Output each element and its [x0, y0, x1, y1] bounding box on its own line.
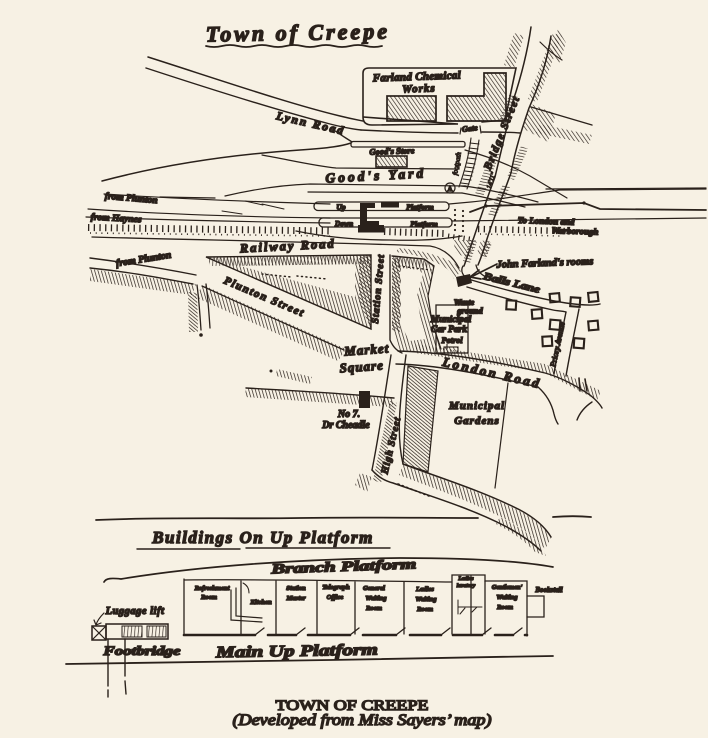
- svg-text:General: General: [363, 585, 385, 592]
- svg-text:Platform: Platform: [406, 203, 434, 212]
- svg-text:Gardens: Gardens: [454, 415, 500, 427]
- svg-text:Down: Down: [334, 219, 353, 228]
- svg-text:Bookstall: Bookstall: [534, 586, 562, 594]
- svg-text:Gate: Gate: [462, 123, 479, 134]
- svg-text:ground: ground: [456, 306, 483, 316]
- svg-text:Station: Station: [286, 585, 306, 592]
- svg-text:Kitchen: Kitchen: [249, 599, 272, 606]
- svg-text:Municipal: Municipal: [448, 400, 505, 412]
- svg-text:Market: Market: [343, 340, 390, 358]
- svg-text:Luggage lift: Luggage lift: [105, 606, 165, 617]
- svg-text:Municipal: Municipal: [430, 315, 472, 325]
- svg-text:Master: Master: [285, 595, 305, 602]
- svg-text:Ladies: Ladies: [415, 586, 434, 593]
- svg-text:Dr Cheadle: Dr Cheadle: [321, 420, 370, 431]
- svg-text:Footbridge: Footbridge: [102, 644, 181, 658]
- svg-text:Warborough: Warborough: [552, 225, 599, 237]
- svg-text:Up: Up: [336, 203, 345, 212]
- svg-text:Waiting: Waiting: [365, 595, 387, 602]
- svg-text:Telegraph: Telegraph: [322, 584, 350, 591]
- svg-text:lavatory: lavatory: [457, 583, 476, 589]
- svg-text:Petrol: Petrol: [441, 335, 463, 345]
- svg-text:Car Park: Car Park: [431, 325, 467, 335]
- svg-text:Waiting: Waiting: [415, 596, 437, 603]
- svg-text:Room: Room: [200, 594, 217, 601]
- svg-text:Gentlemen': Gentlemen': [492, 584, 523, 591]
- svg-text:Waiting: Waiting: [496, 594, 518, 601]
- svg-text:Main Up Platform: Main Up Platform: [214, 642, 378, 662]
- svg-text:(Developed from Miss Sayers’ m: (Developed from Miss Sayers’ map): [233, 712, 492, 729]
- svg-text:Buildings On Up Platform: Buildings On Up Platform: [151, 528, 374, 547]
- svg-text:A: A: [447, 185, 452, 193]
- svg-text:Room: Room: [496, 604, 513, 611]
- svg-text:Room: Room: [365, 605, 382, 612]
- svg-text:Office: Office: [327, 594, 344, 601]
- svg-text:Square: Square: [339, 357, 384, 375]
- svg-text:Works: Works: [402, 82, 436, 95]
- svg-text:No 7.: No 7.: [337, 409, 360, 420]
- svg-text:Good's Store: Good's Store: [369, 145, 415, 157]
- svg-text:Platform: Platform: [410, 220, 438, 229]
- svg-text:Town of Creepe: Town of Creepe: [206, 18, 391, 46]
- svg-text:Room: Room: [416, 606, 433, 613]
- svg-text:Refreshment: Refreshment: [194, 585, 230, 592]
- svg-text:Ladies: Ladies: [457, 576, 473, 582]
